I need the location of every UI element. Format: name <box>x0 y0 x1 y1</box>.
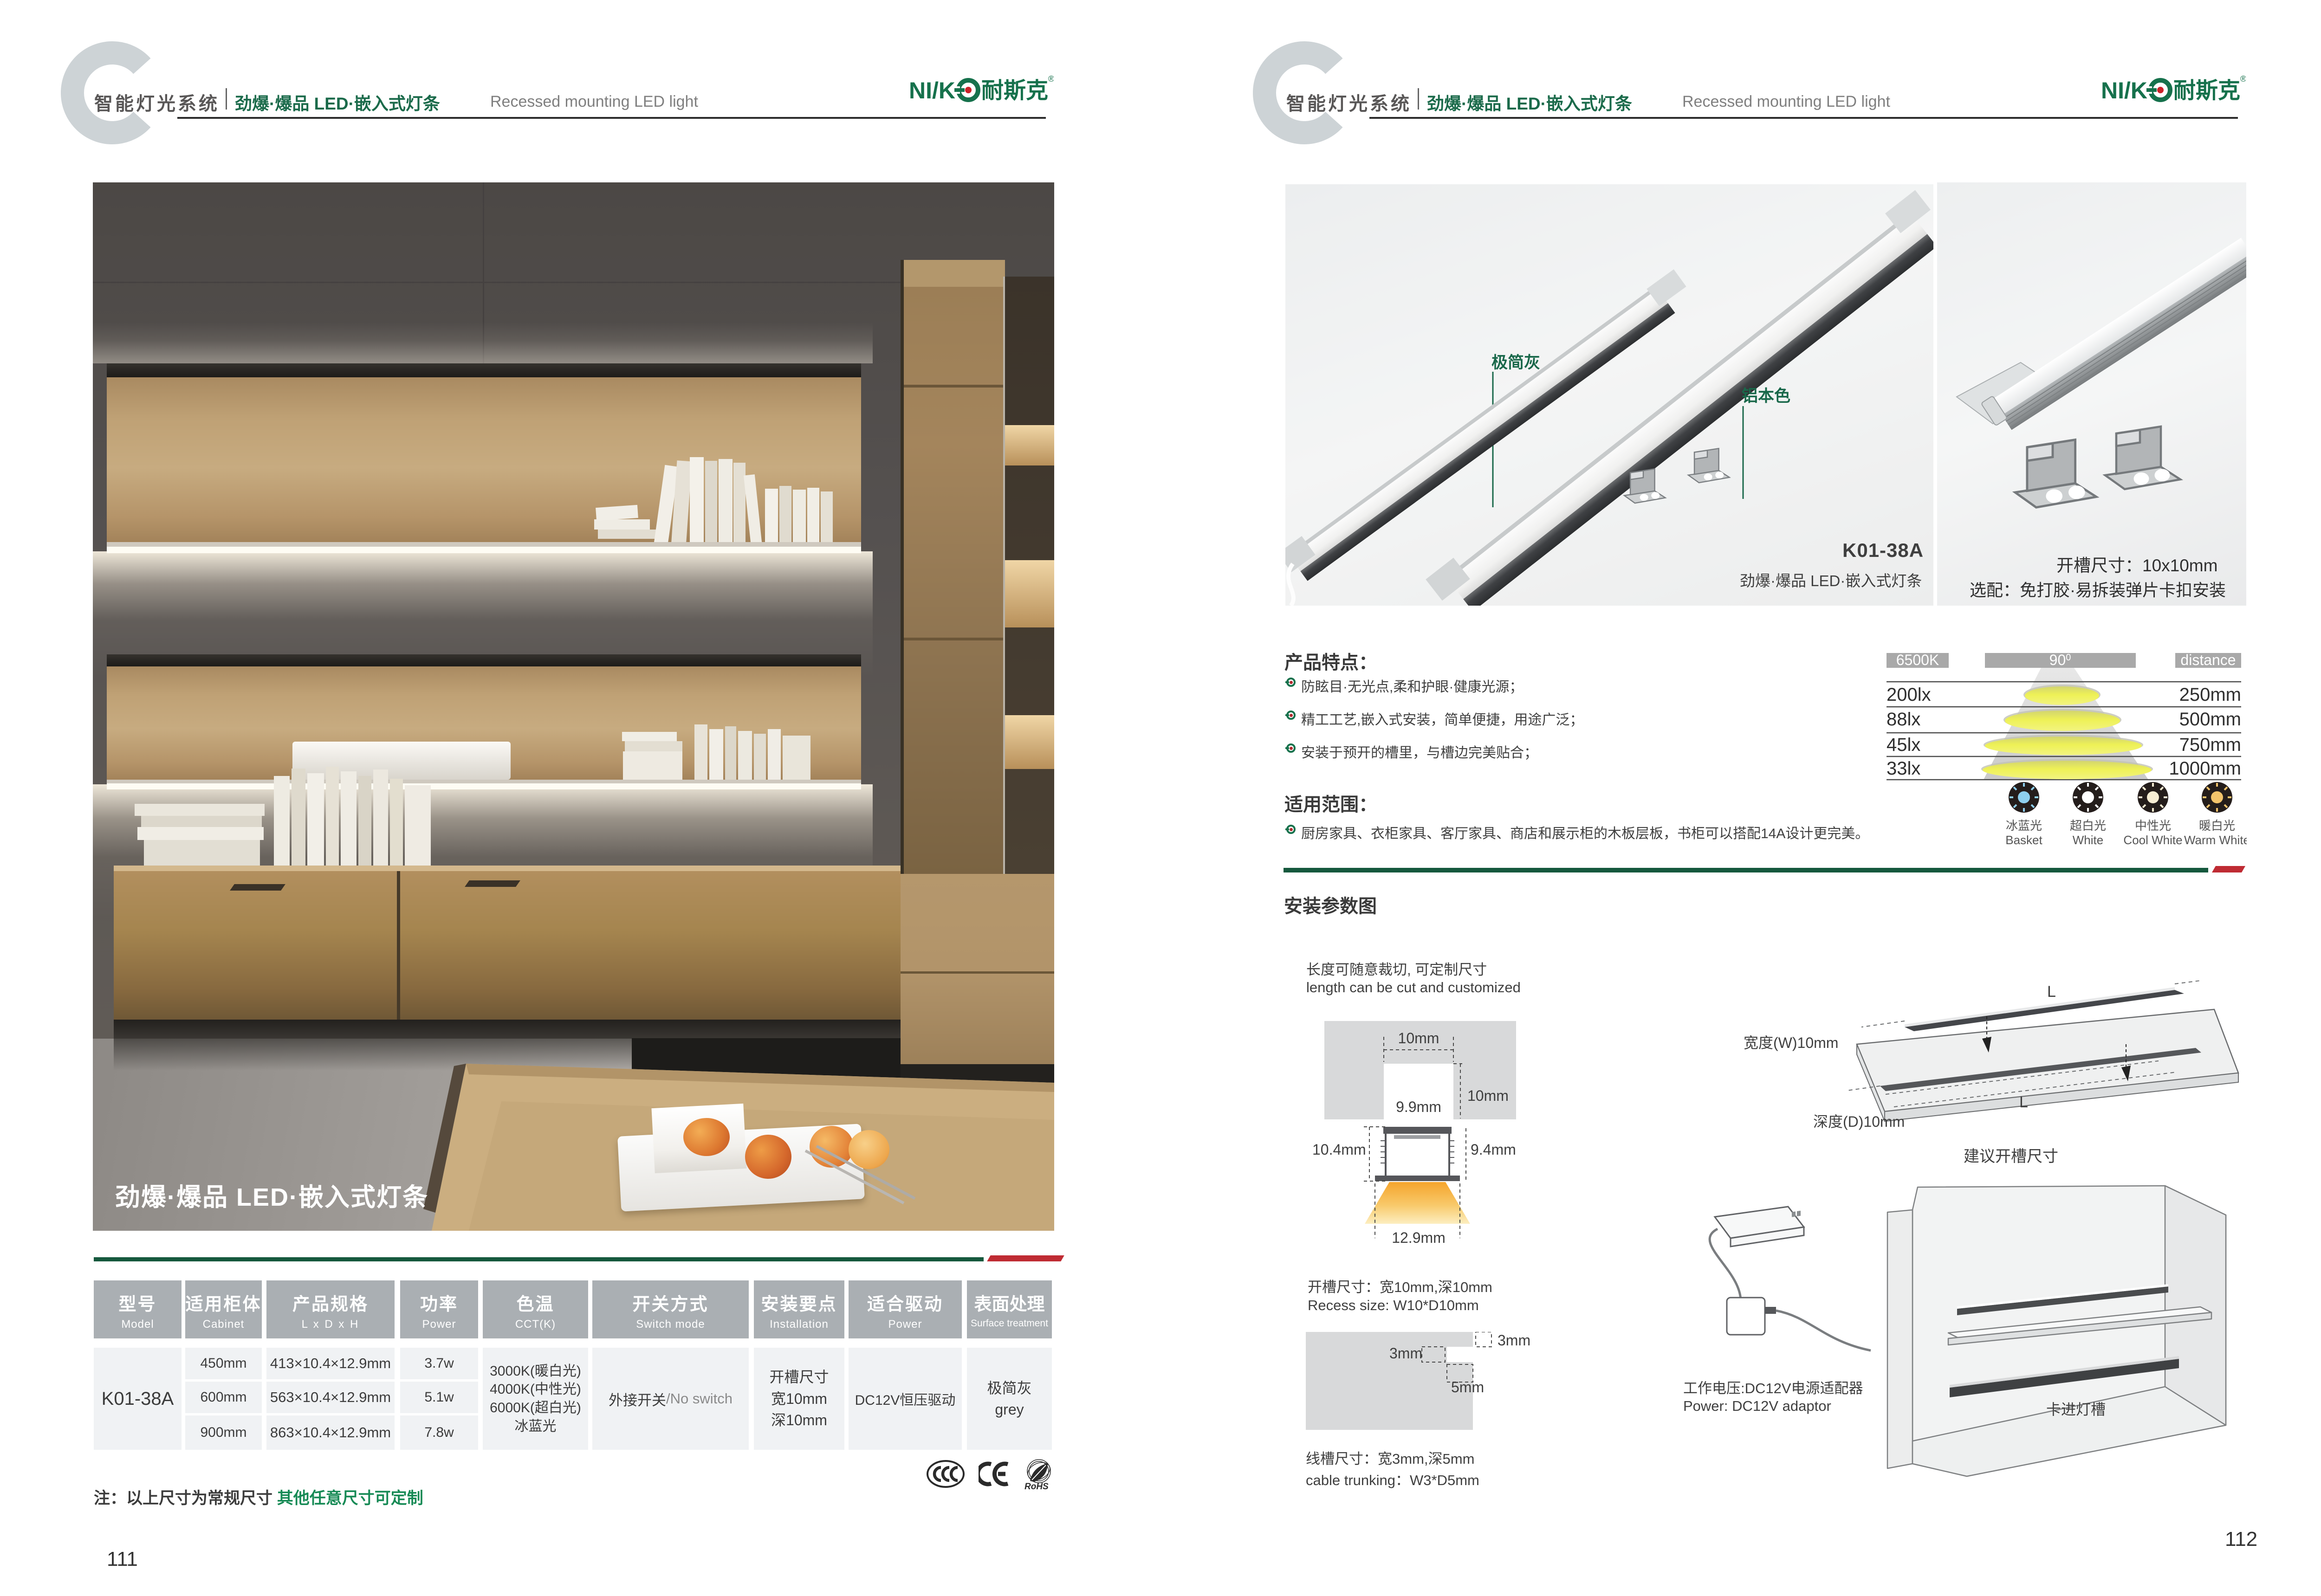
svg-text:12.9mm: 12.9mm <box>1392 1229 1446 1246</box>
svg-text:9.4mm: 9.4mm <box>1471 1141 1516 1158</box>
svg-text:33lx: 33lx <box>1887 758 1920 779</box>
svg-text:5mm: 5mm <box>1451 1379 1484 1396</box>
svg-text:超白光: 超白光 <box>2070 819 2106 833</box>
svg-text:250mm: 250mm <box>2179 685 2241 705</box>
svg-text:10mm: 10mm <box>1398 1030 1439 1047</box>
svg-text:Basket: Basket <box>2005 833 2042 847</box>
svg-text:6500K: 6500K <box>1896 652 1939 668</box>
svg-text:White: White <box>2073 833 2103 847</box>
svg-text:750mm: 750mm <box>2179 735 2241 755</box>
svg-text:45lx: 45lx <box>1887 735 1920 755</box>
svg-text:L: L <box>2019 1093 2028 1111</box>
svg-text:暖白光: 暖白光 <box>2199 819 2235 833</box>
svg-text:200lx: 200lx <box>1887 685 1931 705</box>
svg-text:耐斯克: 耐斯克 <box>2173 78 2240 103</box>
svg-text:Cool White: Cool White <box>2123 833 2182 847</box>
svg-text:NI/K: NI/K <box>2101 78 2147 103</box>
svg-text:10.4mm: 10.4mm <box>1312 1141 1366 1158</box>
svg-text:9.9mm: 9.9mm <box>1396 1098 1441 1115</box>
svg-text:NI/K: NI/K <box>909 78 955 103</box>
svg-text:500mm: 500mm <box>2179 709 2241 730</box>
svg-text:3mm: 3mm <box>1389 1345 1422 1362</box>
svg-text:L: L <box>2047 983 2056 1001</box>
svg-text:冰蓝光: 冰蓝光 <box>2006 819 2042 833</box>
svg-text:耐斯克: 耐斯克 <box>981 78 1048 103</box>
svg-text:3mm: 3mm <box>1498 1332 1530 1349</box>
svg-text:Warm White: Warm White <box>2184 833 2247 847</box>
svg-text:10mm: 10mm <box>1467 1087 1509 1104</box>
svg-text:distance: distance <box>2180 652 2236 668</box>
svg-text:卡进灯槽: 卡进灯槽 <box>2046 1401 2106 1418</box>
svg-text:中性光: 中性光 <box>2135 819 2171 833</box>
svg-text:88lx: 88lx <box>1887 709 1920 730</box>
svg-text:®: ® <box>2240 74 2246 84</box>
svg-text:®: ® <box>1048 74 1054 84</box>
svg-text:1000mm: 1000mm <box>2169 758 2241 779</box>
svg-text:RoHS: RoHS <box>1024 1482 1049 1491</box>
